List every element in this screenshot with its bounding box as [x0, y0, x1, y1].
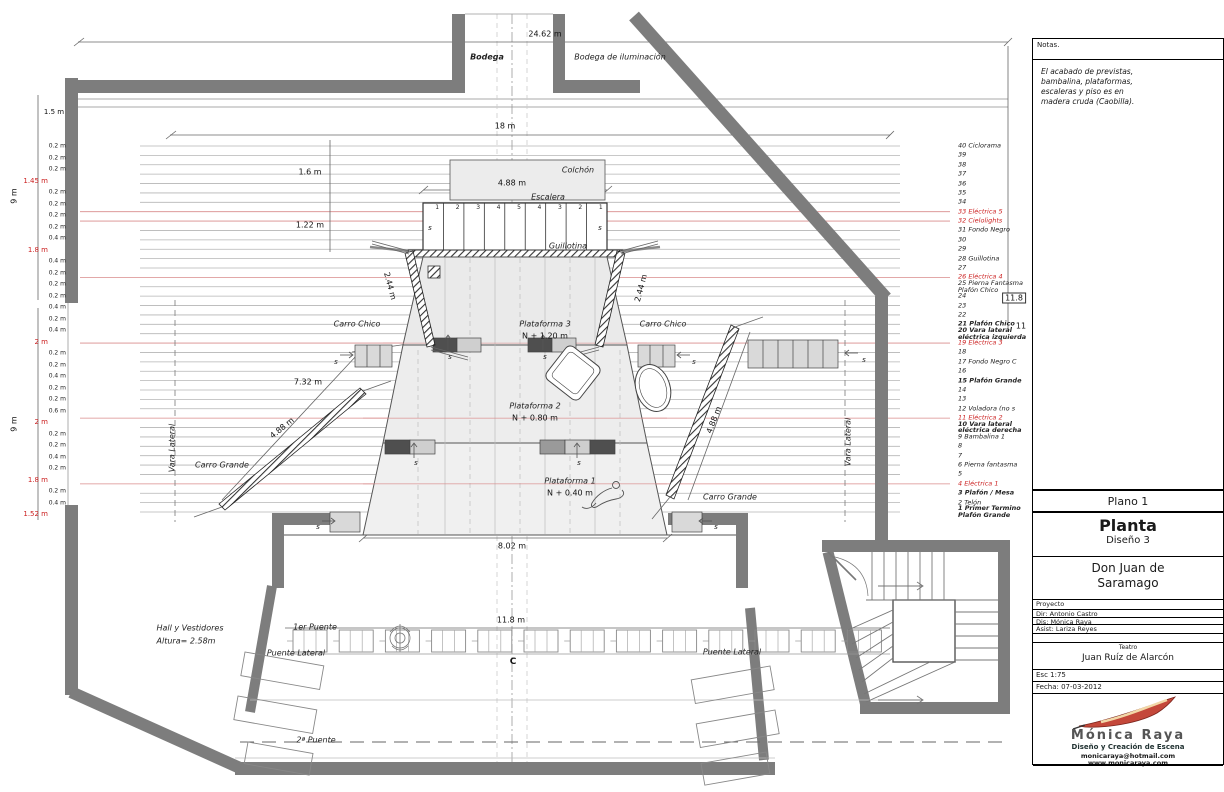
- stair-number: 2: [456, 204, 460, 211]
- vara-label-37: 37: [958, 171, 1032, 178]
- studio-name: Mónica Raya: [1033, 728, 1223, 743]
- primer-puente-seats: [287, 630, 881, 652]
- stair-number: 5: [517, 204, 521, 211]
- left-dim-spacing: 0.2 m: [26, 350, 66, 357]
- studio-subtitle: Diseño y Creación de Escena: [1033, 743, 1223, 751]
- sheet-subtitle: Diseño 3: [1033, 535, 1223, 546]
- vara-label-8: 8: [958, 443, 1032, 450]
- vara-label-16: 16: [958, 368, 1032, 375]
- staircase: [828, 552, 998, 704]
- show-title: Don Juan de Saramago: [1033, 556, 1223, 599]
- carro-grande-left-beam: [219, 388, 366, 510]
- assistant-row: Asist: Lariza Reyes: [1033, 624, 1223, 633]
- left-dim-spacing: 0.2 m: [26, 212, 66, 219]
- quill-logo-icon: [1071, 696, 1181, 730]
- vara-label-1: 1 Primer Termino Plafón Grande: [958, 505, 1032, 519]
- vara-label-30: 30: [958, 236, 1032, 243]
- left-dim-group: 1.8 m: [8, 476, 48, 484]
- left-dim-spacing: 0.2 m: [26, 430, 66, 437]
- notes-body: El acabado de previstas, bambalina, plat…: [1041, 67, 1211, 108]
- vara-label-4: 4 Eléctrica 1: [958, 480, 1032, 487]
- left-dim-spacing: 0.6 m: [26, 407, 66, 414]
- left-dim-spacing: 0.2 m: [26, 292, 66, 299]
- left-dim-spacing: 0.2 m: [26, 488, 66, 495]
- vara-label-27: 27: [958, 265, 1032, 272]
- left-dim-spacing: 0.2 m: [26, 166, 66, 173]
- seat-module: [518, 630, 558, 652]
- left-dim-spacing: 0.2 m: [26, 189, 66, 196]
- vara-label-5: 5: [958, 471, 1032, 478]
- seat-module: [703, 630, 743, 652]
- vara-label-6: 6 Pierna fantasma: [958, 462, 1032, 469]
- left-dim-group: 1.45 m: [8, 177, 48, 185]
- escala-row: Esc 1:75: [1033, 669, 1223, 681]
- stair-number: 3: [558, 204, 562, 211]
- studio-logo-box: Mónica Raya Diseño y Creación de Escena …: [1033, 693, 1223, 764]
- left-dim-group: 2 m: [8, 418, 48, 426]
- vara-label-23: 23: [958, 302, 1032, 309]
- teatro-label: Teatro: [1033, 642, 1223, 653]
- title-block: Notas. El acabado de previstas, bambalin…: [1032, 38, 1224, 765]
- vara-label-28: 28 Guillotina: [958, 255, 1032, 262]
- left-dim-spacing: 0.4 m: [26, 304, 66, 311]
- seat-module: [841, 630, 881, 652]
- platforms: [363, 257, 667, 535]
- director-row: Dir: Antonio Castro: [1033, 609, 1223, 617]
- vara-label-40: 40 Ciclorama: [958, 143, 1032, 150]
- vara-label-22: 22: [958, 312, 1032, 319]
- left-dim-spacing: 0.2 m: [26, 315, 66, 322]
- seat-module: [610, 630, 650, 652]
- stair-number: 4: [497, 204, 501, 211]
- vara-label-35: 35: [958, 190, 1032, 197]
- vara-label-12: 12 Voladora (no s: [958, 405, 1032, 412]
- left-dim-spacing: 0.2 m: [26, 281, 66, 288]
- vara-label-36: 36: [958, 180, 1032, 187]
- left-dim-spacing: 0.2 m: [26, 361, 66, 368]
- notes-title: Notas.: [1037, 41, 1059, 49]
- construction-lines: [78, 99, 1008, 107]
- left-dim-group: 1.52 m: [8, 510, 48, 518]
- proyecto-row: Proyecto: [1033, 599, 1223, 609]
- vara-label-39: 39: [958, 152, 1032, 159]
- vara-label-15: 15 Plafón Grande: [958, 377, 1032, 384]
- vara-label-18: 18: [958, 349, 1032, 356]
- left-dim-spacing: 0.2 m: [26, 465, 66, 472]
- vara-label-14: 14: [958, 387, 1032, 394]
- stair-number: 1: [435, 204, 439, 211]
- vara-label-3: 3 Plafón / Mesa: [958, 490, 1032, 497]
- left-dim-spacing: 0.2 m: [26, 143, 66, 150]
- vara-label-31: 31 Fondo Negro: [958, 227, 1032, 234]
- stair-number: 3: [476, 204, 480, 211]
- seat-module: [564, 630, 604, 652]
- vara-label-19: 19 Eléctrica 3: [958, 340, 1032, 347]
- left-dim-spacing: 0.2 m: [26, 442, 66, 449]
- colchon-shape: [450, 160, 605, 200]
- stage-plan-page: 24.62 m 18 m Bodega Bodega de iluminació…: [0, 0, 1224, 792]
- left-dim-spacing: 0.2 m: [26, 269, 66, 276]
- vara-label-7: 7: [958, 452, 1032, 459]
- left-dim-spacing: 0.4 m: [26, 373, 66, 380]
- vara-label-24: 24: [958, 293, 1032, 300]
- left-dim-spacing: 0.2 m: [26, 154, 66, 161]
- left-dim-spacing: 0.2 m: [26, 200, 66, 207]
- plan-drawing: [0, 0, 1030, 792]
- left-dim-spacing: 0.4 m: [26, 235, 66, 242]
- vara-label-33: 33 Eléctrica 5: [958, 208, 1032, 215]
- vara-label-25: 25 Pierna Fantasma Plafón Chico: [958, 280, 1032, 294]
- stair-number: 4: [538, 204, 542, 211]
- seat-module: [287, 630, 327, 652]
- vara-label-17: 17 Fondo Negro C: [958, 358, 1032, 365]
- left-dim-spacing: 0.4 m: [26, 258, 66, 265]
- seat-module: [657, 630, 697, 652]
- left-dim-group: 1.8 m: [8, 246, 48, 254]
- seat-module: [333, 630, 373, 652]
- vara-label-32: 32 Cielolights: [958, 218, 1032, 225]
- seat-module: [795, 630, 835, 652]
- left-dim-spacing: 0.2 m: [26, 223, 66, 230]
- left-dim-group: 2 m: [8, 338, 48, 346]
- stair-number: 2: [578, 204, 582, 211]
- left-dim-spacing: 0.4 m: [26, 453, 66, 460]
- teatro-name: Juan Ruíz de Alarcón: [1033, 653, 1223, 667]
- vara-label-13: 13: [958, 396, 1032, 403]
- vara-label-9: 9 Bambalina 1: [958, 434, 1032, 441]
- vara-label-34: 34: [958, 199, 1032, 206]
- stair-number: 1: [599, 204, 603, 211]
- vara-label-29: 29: [958, 246, 1032, 253]
- left-dim-spacing: 0.2 m: [26, 384, 66, 391]
- vara-label-38: 38: [958, 161, 1032, 168]
- sheet-title: Planta: [1033, 516, 1223, 535]
- sheet-title-box: Planta Diseño 3: [1033, 511, 1223, 556]
- left-dim-spacing: 0.2 m: [26, 396, 66, 403]
- fecha-row: Fecha: 07-03-2012: [1033, 681, 1223, 693]
- seat-module: [749, 630, 789, 652]
- designer-row: Dis: Mónica Raya: [1033, 617, 1223, 624]
- trap-square: [428, 266, 440, 278]
- seat-module: [472, 630, 512, 652]
- left-dim-spacing: 0.4 m: [26, 499, 66, 506]
- carro-grande-right-beam: [666, 325, 739, 499]
- left-dim-spacing: 0.4 m: [26, 327, 66, 334]
- seat-module: [426, 630, 466, 652]
- plano-number: Plano 1: [1033, 489, 1223, 511]
